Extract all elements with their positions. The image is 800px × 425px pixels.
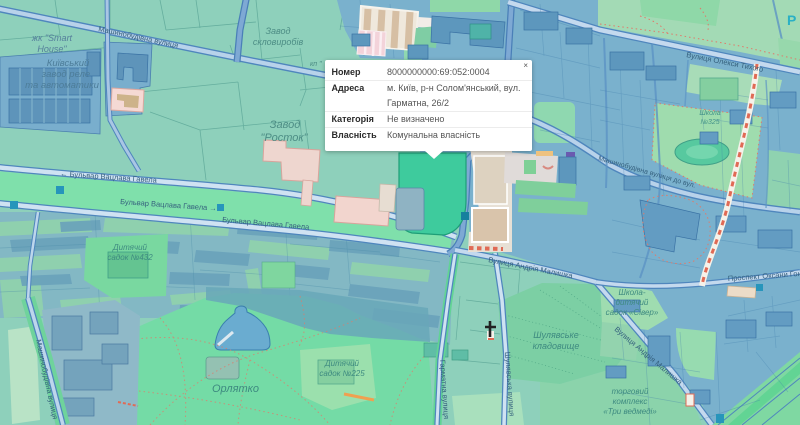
svg-text:Шулявське: Шулявське [533,330,579,340]
svg-text:«Три ведмеді»: «Три ведмеді» [603,407,657,416]
svg-text:"Росток": "Росток" [261,132,309,144]
svg-text:жк "Smart: жк "Smart [31,33,73,43]
svg-text:кладовище: кладовище [533,341,580,351]
svg-text:Орлятко: Орлятко [212,383,259,395]
svg-text:Р: Р [787,12,796,28]
svg-text:садок «Сівер»: садок «Сівер» [606,308,659,317]
svg-text:Школа-: Школа- [618,288,645,297]
svg-text:садок №225: садок №225 [319,369,365,378]
svg-text:Школа: Школа [699,110,720,117]
svg-text:та автоматики: та автоматики [25,80,99,91]
svg-text:торговий: торговий [612,387,649,396]
svg-text:Дитячий: Дитячий [112,243,148,252]
svg-text:садок №432: садок №432 [107,253,153,262]
svg-text:Завод: Завод [265,26,290,36]
svg-text:комплекс: комплекс [613,397,648,406]
svg-text:кп ": кп " [310,61,322,68]
svg-text:House": House" [37,44,67,54]
svg-text:дитячий: дитячий [616,298,649,307]
svg-text:Дитячий: Дитячий [324,359,360,368]
svg-text:скловиробів: скловиробів [253,37,304,47]
svg-text:Завод: Завод [270,119,301,131]
svg-text:№325: №325 [700,119,719,126]
svg-text:Київський: Київський [47,58,90,69]
svg-text:завод реле: завод реле [41,69,90,80]
